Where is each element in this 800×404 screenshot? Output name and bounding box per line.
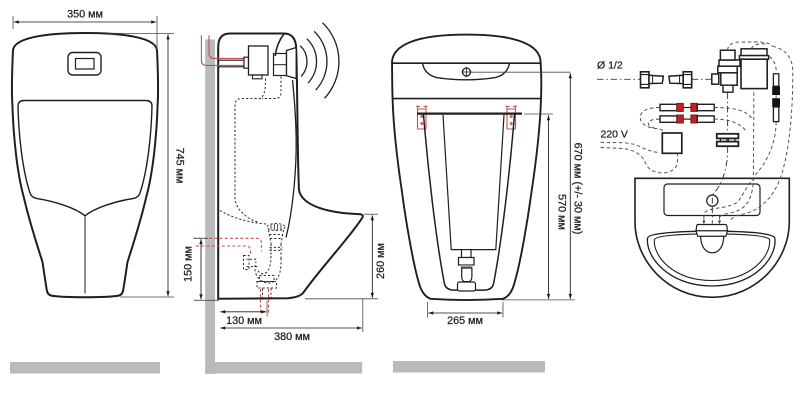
svg-text:570 мм: 570 мм <box>556 194 568 230</box>
svg-text:Ø 1/2: Ø 1/2 <box>597 60 623 72</box>
svg-text:380 мм: 380 мм <box>274 331 310 343</box>
svg-text:130 мм: 130 мм <box>226 315 262 327</box>
svg-text:260 мм: 260 мм <box>375 243 387 279</box>
svg-text:220 V: 220 V <box>601 129 628 141</box>
svg-text:670 мм (+/- 30 мм): 670 мм (+/- 30 мм) <box>572 143 584 235</box>
svg-text:745 мм: 745 мм <box>174 148 186 184</box>
svg-text:150 мм: 150 мм <box>182 246 194 282</box>
svg-text:265 мм: 265 мм <box>447 315 483 327</box>
svg-text:350 мм: 350 мм <box>67 9 103 21</box>
